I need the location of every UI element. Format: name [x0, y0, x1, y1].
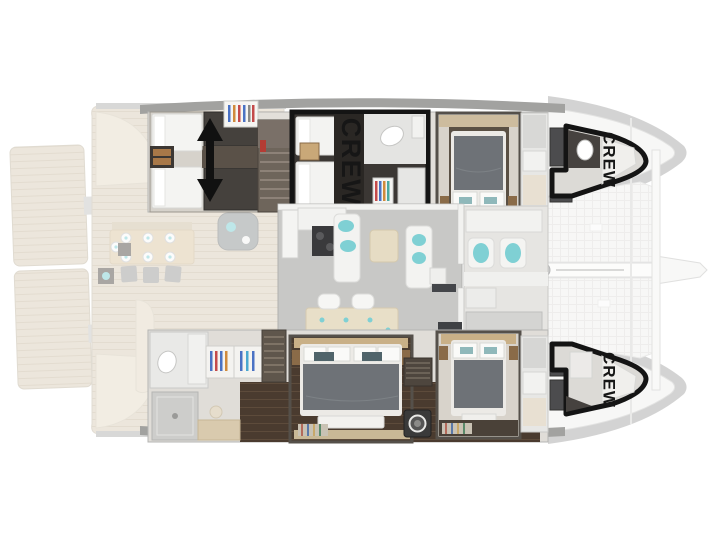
shower-drain [172, 413, 178, 419]
crew-bookshelf [373, 178, 393, 204]
hanger-closet-starboard [224, 101, 258, 127]
shower [523, 115, 546, 148]
seat-cushion [505, 243, 521, 263]
catamaran-floorplan: CREW [0, 0, 720, 540]
cockpit-chairs [120, 265, 181, 283]
sink [523, 151, 546, 171]
bath-port-aft [150, 332, 208, 388]
duvet [454, 360, 503, 408]
duvet [303, 364, 399, 410]
swim-platform-lower [14, 269, 92, 390]
crew-label-bow-starboard: CREW [600, 132, 619, 188]
fridge [282, 210, 298, 258]
nightstand [509, 346, 518, 360]
nightstand [439, 346, 448, 360]
accent-pillow [362, 352, 382, 361]
bath-mat [523, 175, 546, 205]
hanger-closet-port [206, 346, 262, 378]
rug [442, 423, 472, 434]
coffee-table [370, 230, 398, 262]
vanity-stool [210, 406, 222, 418]
planter-bowl [102, 272, 110, 280]
deck-hatch [590, 224, 602, 231]
forward-cockpit [464, 206, 548, 346]
duvet [454, 136, 503, 190]
crew-cabinet [570, 352, 592, 378]
pillow [154, 116, 165, 149]
accent-cushion [412, 234, 426, 246]
bar-burner [242, 236, 250, 244]
tv-console [432, 284, 456, 292]
forward-locker-small [466, 288, 496, 308]
sink [412, 116, 424, 138]
shower [523, 338, 546, 368]
crew-cabin-midship: CREW [292, 112, 428, 212]
side-table [430, 268, 446, 284]
bowsprit [656, 256, 707, 284]
crew-label-bow-port: CREW [600, 352, 619, 408]
forward-bench [466, 210, 542, 232]
sink [523, 372, 546, 394]
bath-starboard-fwd [521, 113, 548, 210]
outdoor-bar [218, 213, 258, 250]
floorplan-canvas: CREW [0, 0, 720, 540]
accent-pillow [460, 347, 473, 354]
platform-hinge [84, 197, 93, 215]
accent-pillow [484, 347, 497, 354]
swim-platform-upper [10, 145, 88, 267]
cabin-port-owner [290, 336, 412, 442]
stairs-salon-port [404, 358, 432, 386]
crew-label-midship: CREW [336, 118, 366, 207]
dresser-drawer [153, 149, 171, 156]
starboard-hull-interior: CREW [148, 101, 548, 221]
toilet-icon [577, 140, 593, 160]
cabin-port-guest [437, 332, 520, 438]
port-hull-interior [148, 330, 548, 442]
accent-pillow [484, 197, 497, 204]
deck-hatch [598, 300, 610, 307]
vanity-desk [198, 420, 240, 440]
accent-pillow [314, 352, 334, 361]
swim-platform [10, 145, 98, 390]
accent-cushion [412, 252, 426, 264]
accent-cushion [340, 240, 356, 252]
planter [118, 243, 131, 256]
fire-extinguisher [260, 140, 266, 152]
salon-wall-fwd-upper [458, 204, 464, 264]
dresser-drawer [153, 158, 171, 165]
bar-sink [226, 222, 236, 232]
pillow [298, 164, 310, 206]
forward-walkway [464, 272, 548, 286]
dining-chair [352, 294, 374, 309]
bath-mat [523, 398, 546, 426]
bath-port-fwd [521, 336, 548, 432]
rug [298, 424, 328, 436]
vanity-counter [188, 334, 206, 384]
crew-shower [398, 168, 425, 209]
washing-machine-icon [404, 410, 431, 437]
stairs-starboard [258, 120, 292, 212]
pillow [154, 169, 165, 206]
stairs-port [262, 330, 286, 382]
shelf [439, 115, 518, 127]
accent-pillow [459, 197, 472, 204]
crew-dresser [300, 143, 319, 160]
accent-cushion [338, 220, 354, 232]
dining-chair [318, 294, 340, 309]
seat-cushion [473, 243, 489, 263]
crossbeam [652, 150, 660, 390]
